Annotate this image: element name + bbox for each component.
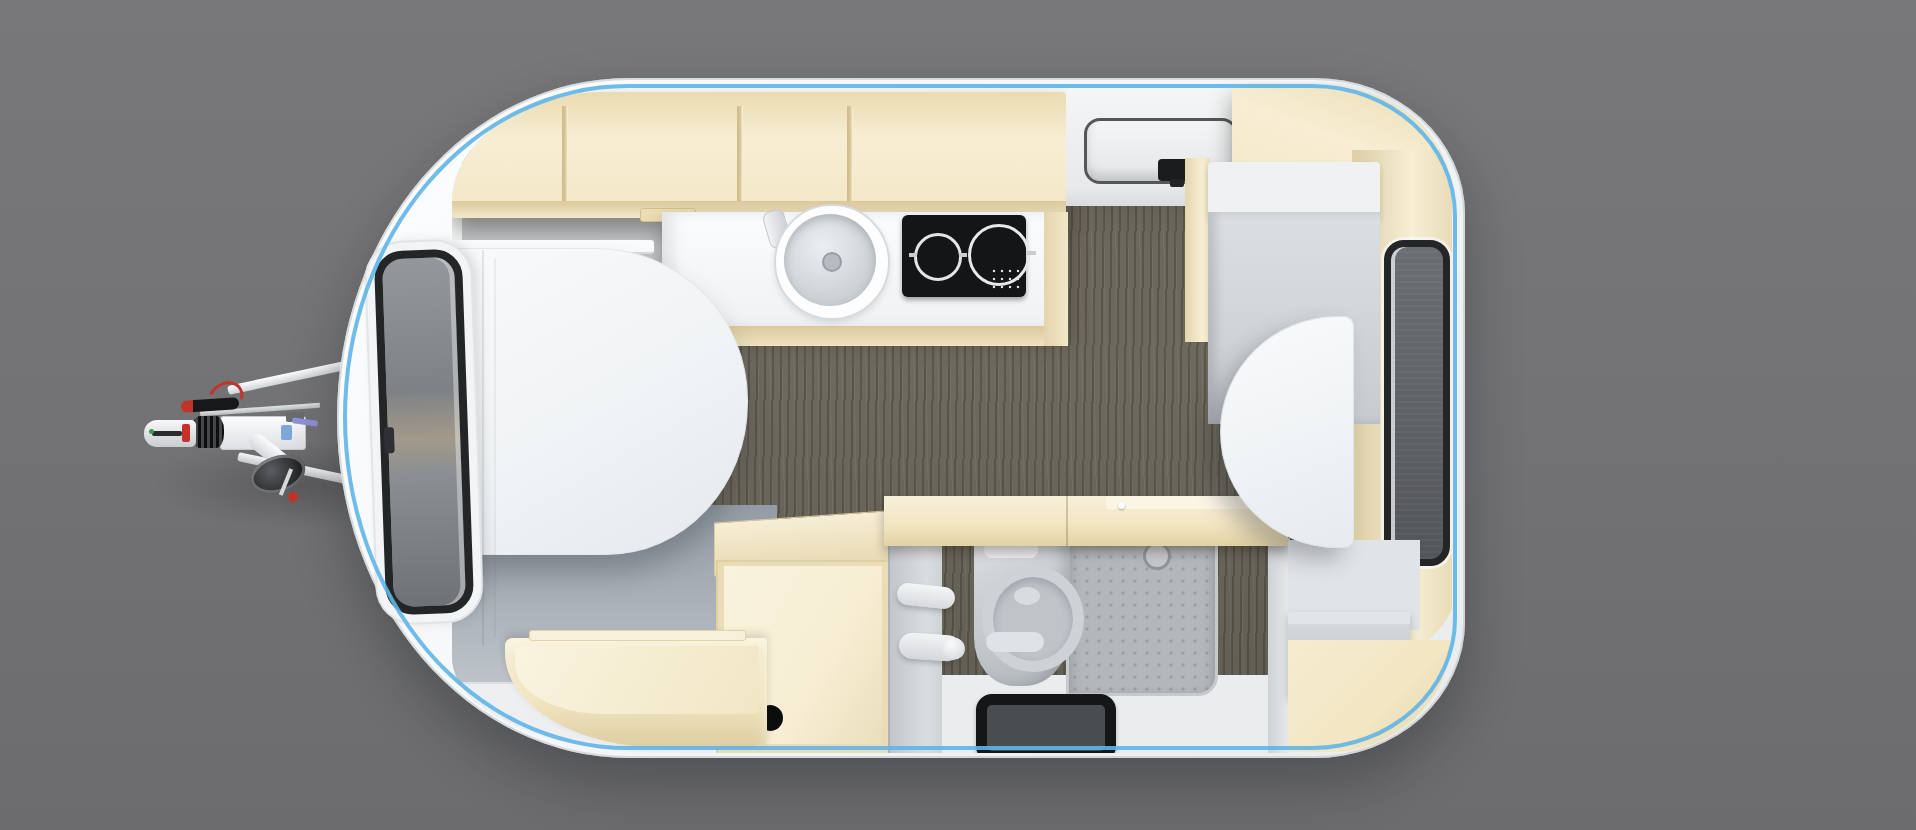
coupling-indicator xyxy=(149,429,154,434)
hob-burner-small xyxy=(914,233,962,281)
toilet-base-panel xyxy=(986,632,1044,652)
kitchen-cabinet-side xyxy=(1044,212,1068,346)
locker-divider xyxy=(737,106,743,202)
rear-seat-backrest xyxy=(1208,162,1380,218)
sink-basin xyxy=(784,214,876,306)
front-wall-seam xyxy=(482,250,484,646)
front-window-surround xyxy=(365,240,482,623)
coupling-head xyxy=(144,420,196,447)
coupling-slot xyxy=(152,431,182,436)
washroom-rear-wall xyxy=(1268,538,1290,753)
rear-compartment-floor xyxy=(1288,640,1450,752)
washroom-door-handle xyxy=(898,632,962,662)
cassette-toilet xyxy=(974,536,1070,686)
front-window-latch xyxy=(384,427,395,453)
shower-tray xyxy=(1066,536,1218,696)
front-bed-cushion xyxy=(452,248,748,555)
caravan-floorplan-render xyxy=(0,0,1916,830)
hitch-bellows xyxy=(192,416,224,448)
kitchen-sink xyxy=(774,204,890,320)
seat-partition-panel xyxy=(1185,158,1210,342)
floor-drain-mat xyxy=(976,694,1116,753)
washroom-countertop xyxy=(884,496,1288,546)
front-wall-seam xyxy=(494,258,496,638)
sink-drain xyxy=(822,252,842,272)
rear-window xyxy=(1384,240,1450,566)
locker-divider xyxy=(847,106,853,202)
coupling-release-button xyxy=(182,424,190,442)
two-burner-hob xyxy=(902,215,1026,297)
toilet-lid-cap xyxy=(1014,587,1040,605)
toilet-seat-ring xyxy=(982,566,1084,672)
front-window xyxy=(374,249,475,616)
countertop-knob xyxy=(1118,502,1125,509)
hob-controls xyxy=(990,267,1022,289)
shower-drain xyxy=(1143,542,1171,570)
jockey-crank-knob xyxy=(288,492,298,502)
locker-divider xyxy=(562,106,568,202)
overhead-lockers-front xyxy=(452,92,1066,218)
caravan-interior xyxy=(452,82,1452,753)
hitch-label-sticker xyxy=(281,425,292,440)
